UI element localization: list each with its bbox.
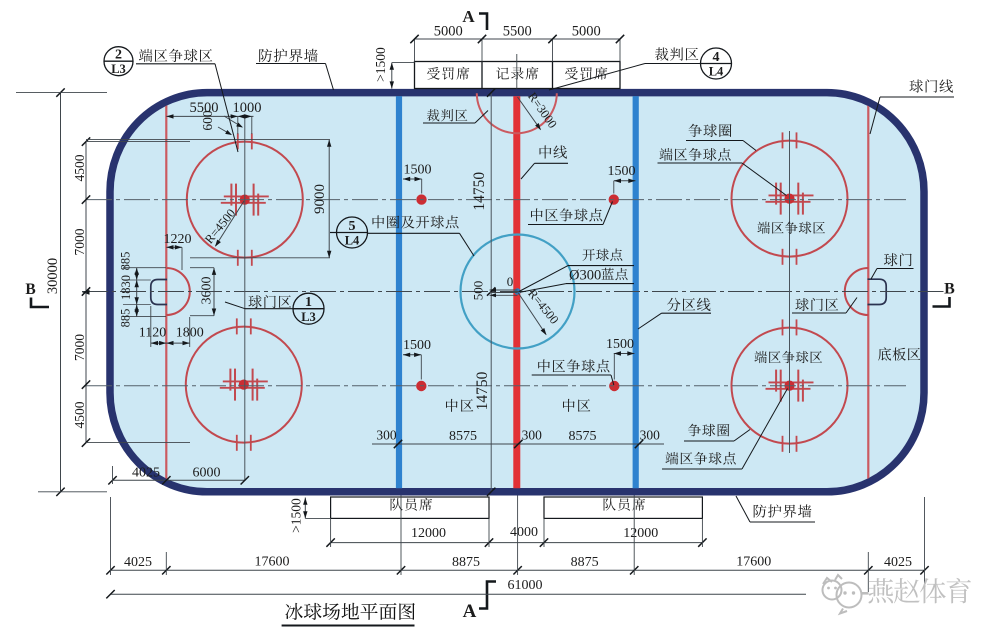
svg-text:5: 5 <box>349 219 356 234</box>
svg-text:30000: 30000 <box>45 258 61 294</box>
svg-text:4: 4 <box>713 50 720 65</box>
svg-text:14750: 14750 <box>471 172 488 211</box>
svg-text:14750: 14750 <box>474 371 491 410</box>
svg-text:L3: L3 <box>111 62 126 76</box>
svg-text:4025: 4025 <box>884 555 912 570</box>
svg-text:12000: 12000 <box>623 526 658 541</box>
svg-text:5500: 5500 <box>503 23 532 39</box>
svg-text:17600: 17600 <box>736 554 771 569</box>
svg-text:L4: L4 <box>345 234 360 248</box>
svg-text:>1500: >1500 <box>289 498 304 533</box>
svg-text:600: 600 <box>200 110 215 131</box>
svg-text:1500: 1500 <box>403 338 431 353</box>
svg-text:17600: 17600 <box>255 554 290 569</box>
svg-text:L3: L3 <box>301 310 316 324</box>
svg-text:500: 500 <box>471 281 486 301</box>
svg-text:B: B <box>25 281 35 298</box>
svg-text:1500: 1500 <box>404 162 432 177</box>
svg-text:300: 300 <box>376 428 397 443</box>
svg-text:8875: 8875 <box>571 555 599 570</box>
svg-text:61000: 61000 <box>508 578 543 593</box>
svg-text:5000: 5000 <box>572 23 601 39</box>
svg-text:L4: L4 <box>709 65 724 79</box>
svg-text:4500: 4500 <box>72 401 87 428</box>
svg-text:5000: 5000 <box>434 23 463 39</box>
svg-text:Ø300: Ø300 <box>569 268 601 284</box>
svg-text:9000: 9000 <box>312 184 328 214</box>
svg-text:4025: 4025 <box>132 465 160 480</box>
svg-text:6000: 6000 <box>193 465 221 480</box>
svg-text:7000: 7000 <box>72 228 87 255</box>
svg-text:1800: 1800 <box>176 325 204 340</box>
svg-text:4500: 4500 <box>72 154 87 181</box>
svg-text:8875: 8875 <box>452 555 480 570</box>
svg-text:1: 1 <box>305 295 312 310</box>
svg-text:885: 885 <box>119 252 133 271</box>
svg-text:1000: 1000 <box>233 100 262 116</box>
svg-text:300: 300 <box>522 428 543 443</box>
svg-text:7000: 7000 <box>72 334 87 361</box>
svg-text:2: 2 <box>115 48 122 63</box>
svg-text:1830: 1830 <box>119 275 133 300</box>
svg-text:1500: 1500 <box>608 164 636 179</box>
svg-text:>1500: >1500 <box>373 47 388 82</box>
svg-text:3600: 3600 <box>199 277 214 305</box>
svg-text:A: A <box>462 7 475 26</box>
svg-text:1120: 1120 <box>139 325 166 340</box>
svg-text:8575: 8575 <box>449 429 477 444</box>
svg-text:300: 300 <box>640 428 661 443</box>
svg-text:0: 0 <box>507 274 514 289</box>
svg-text:885: 885 <box>119 309 133 328</box>
svg-text:1500: 1500 <box>606 337 634 352</box>
svg-text:1220: 1220 <box>164 232 192 247</box>
svg-text:4025: 4025 <box>124 555 152 570</box>
svg-text:A: A <box>463 601 477 622</box>
svg-text:4000: 4000 <box>510 525 538 540</box>
svg-text:B: B <box>944 280 955 297</box>
svg-text:12000: 12000 <box>411 526 446 541</box>
svg-text:8575: 8575 <box>569 429 597 444</box>
